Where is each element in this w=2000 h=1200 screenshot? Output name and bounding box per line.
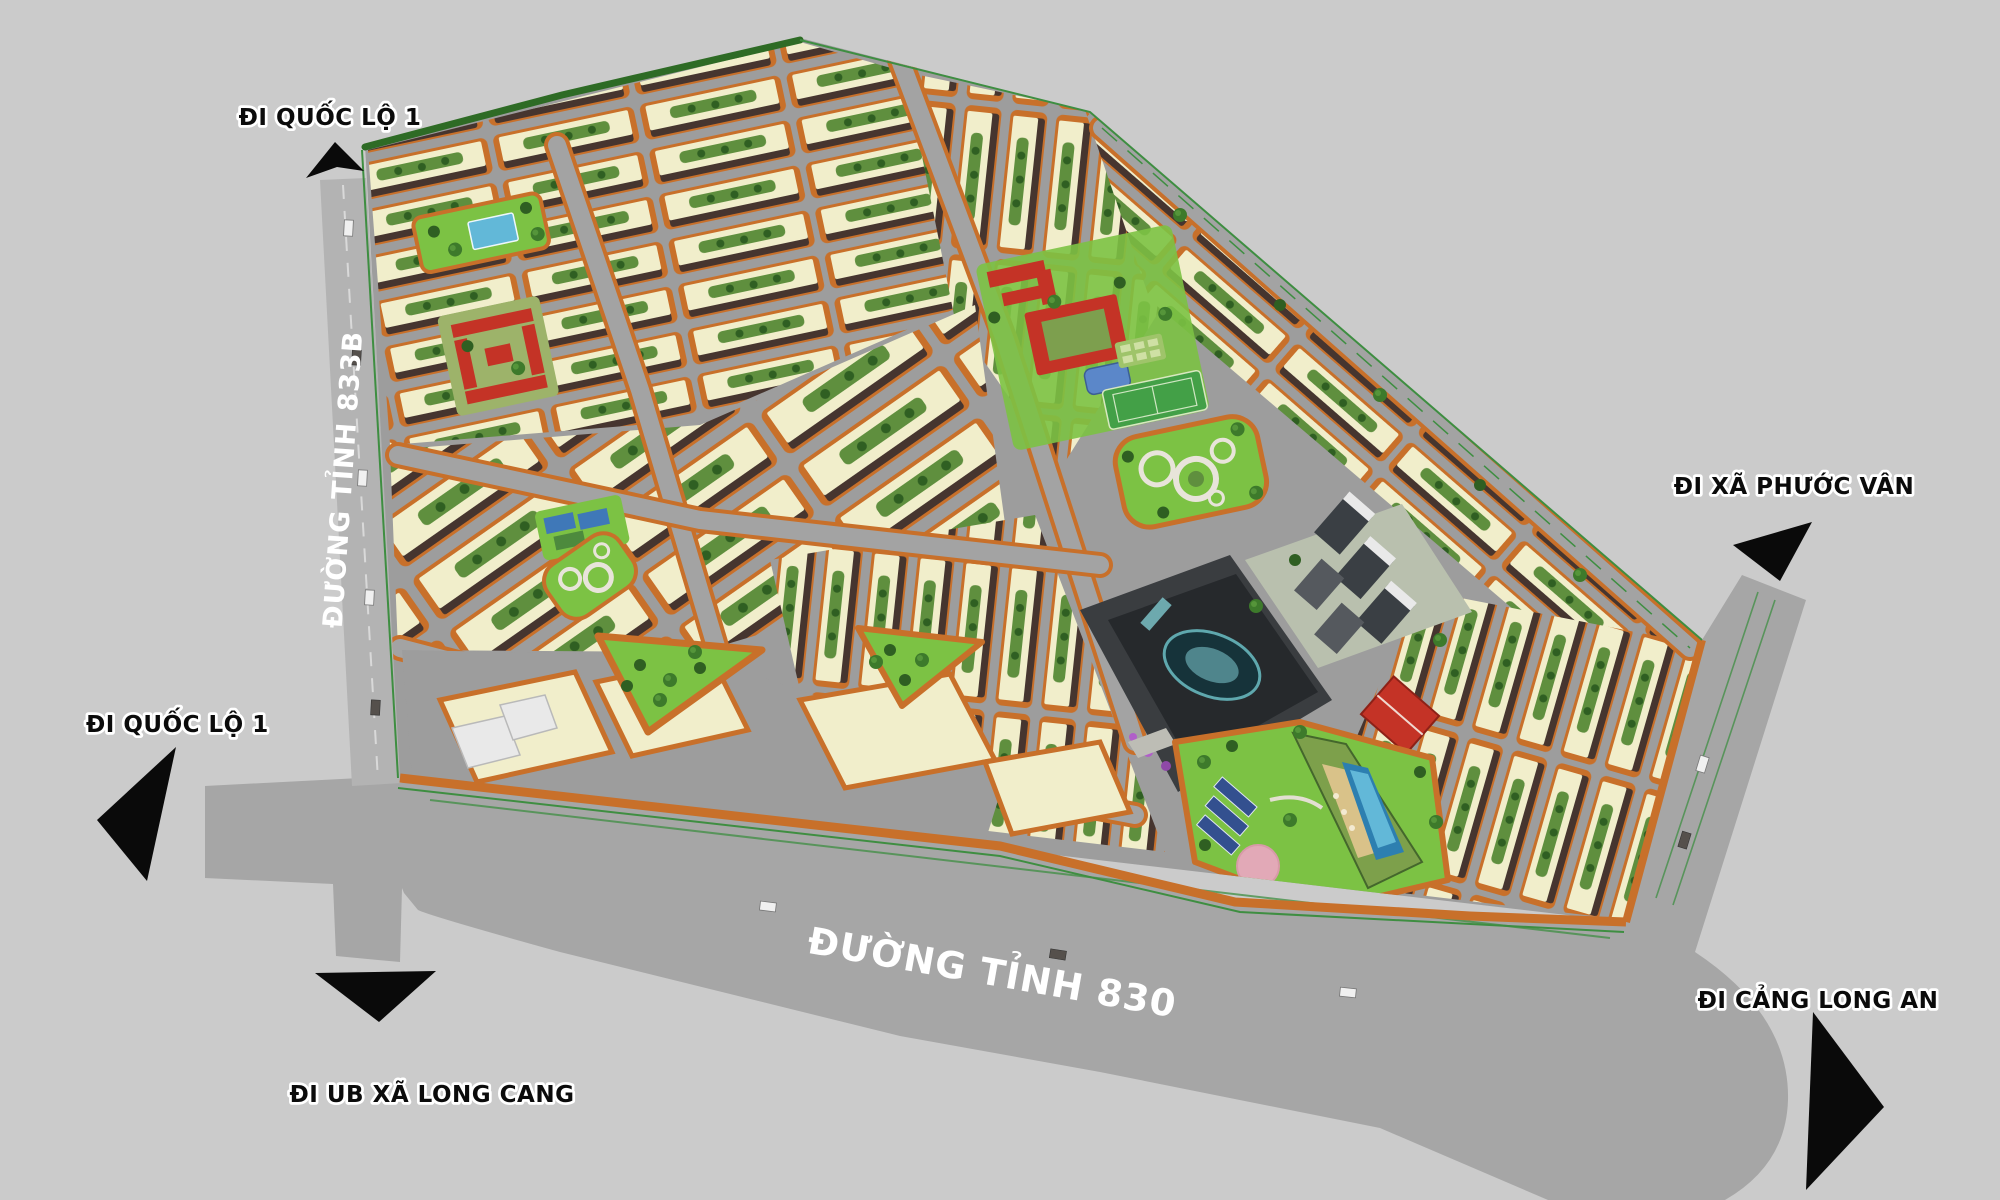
masterplan-rendering: ĐI QUỐC LỘ 1 ĐI QUỐC LỘ 1 ĐI UB XÃ LONG … xyxy=(0,0,2000,1200)
label-di-cang-long-an: ĐI CẢNG LONG AN xyxy=(1698,984,1939,1014)
school-campus xyxy=(975,224,1210,451)
label-di-quoc-lo-1-north: ĐI QUỐC LỘ 1 xyxy=(239,100,422,131)
masterplan-canvas: ĐI QUỐC LỘ 1 ĐI QUỐC LỘ 1 ĐI UB XÃ LONG … xyxy=(0,0,2000,1200)
label-di-xa-phuoc-van: ĐI XÃ PHƯỚC VÂN xyxy=(1674,472,1914,500)
label-di-ub-xa-long-cang: ĐI UB XÃ LONG CANG xyxy=(290,1080,575,1108)
temple-complex xyxy=(437,295,560,416)
label-di-quoc-lo-1-west: ĐI QUỐC LỘ 1 xyxy=(86,707,269,738)
